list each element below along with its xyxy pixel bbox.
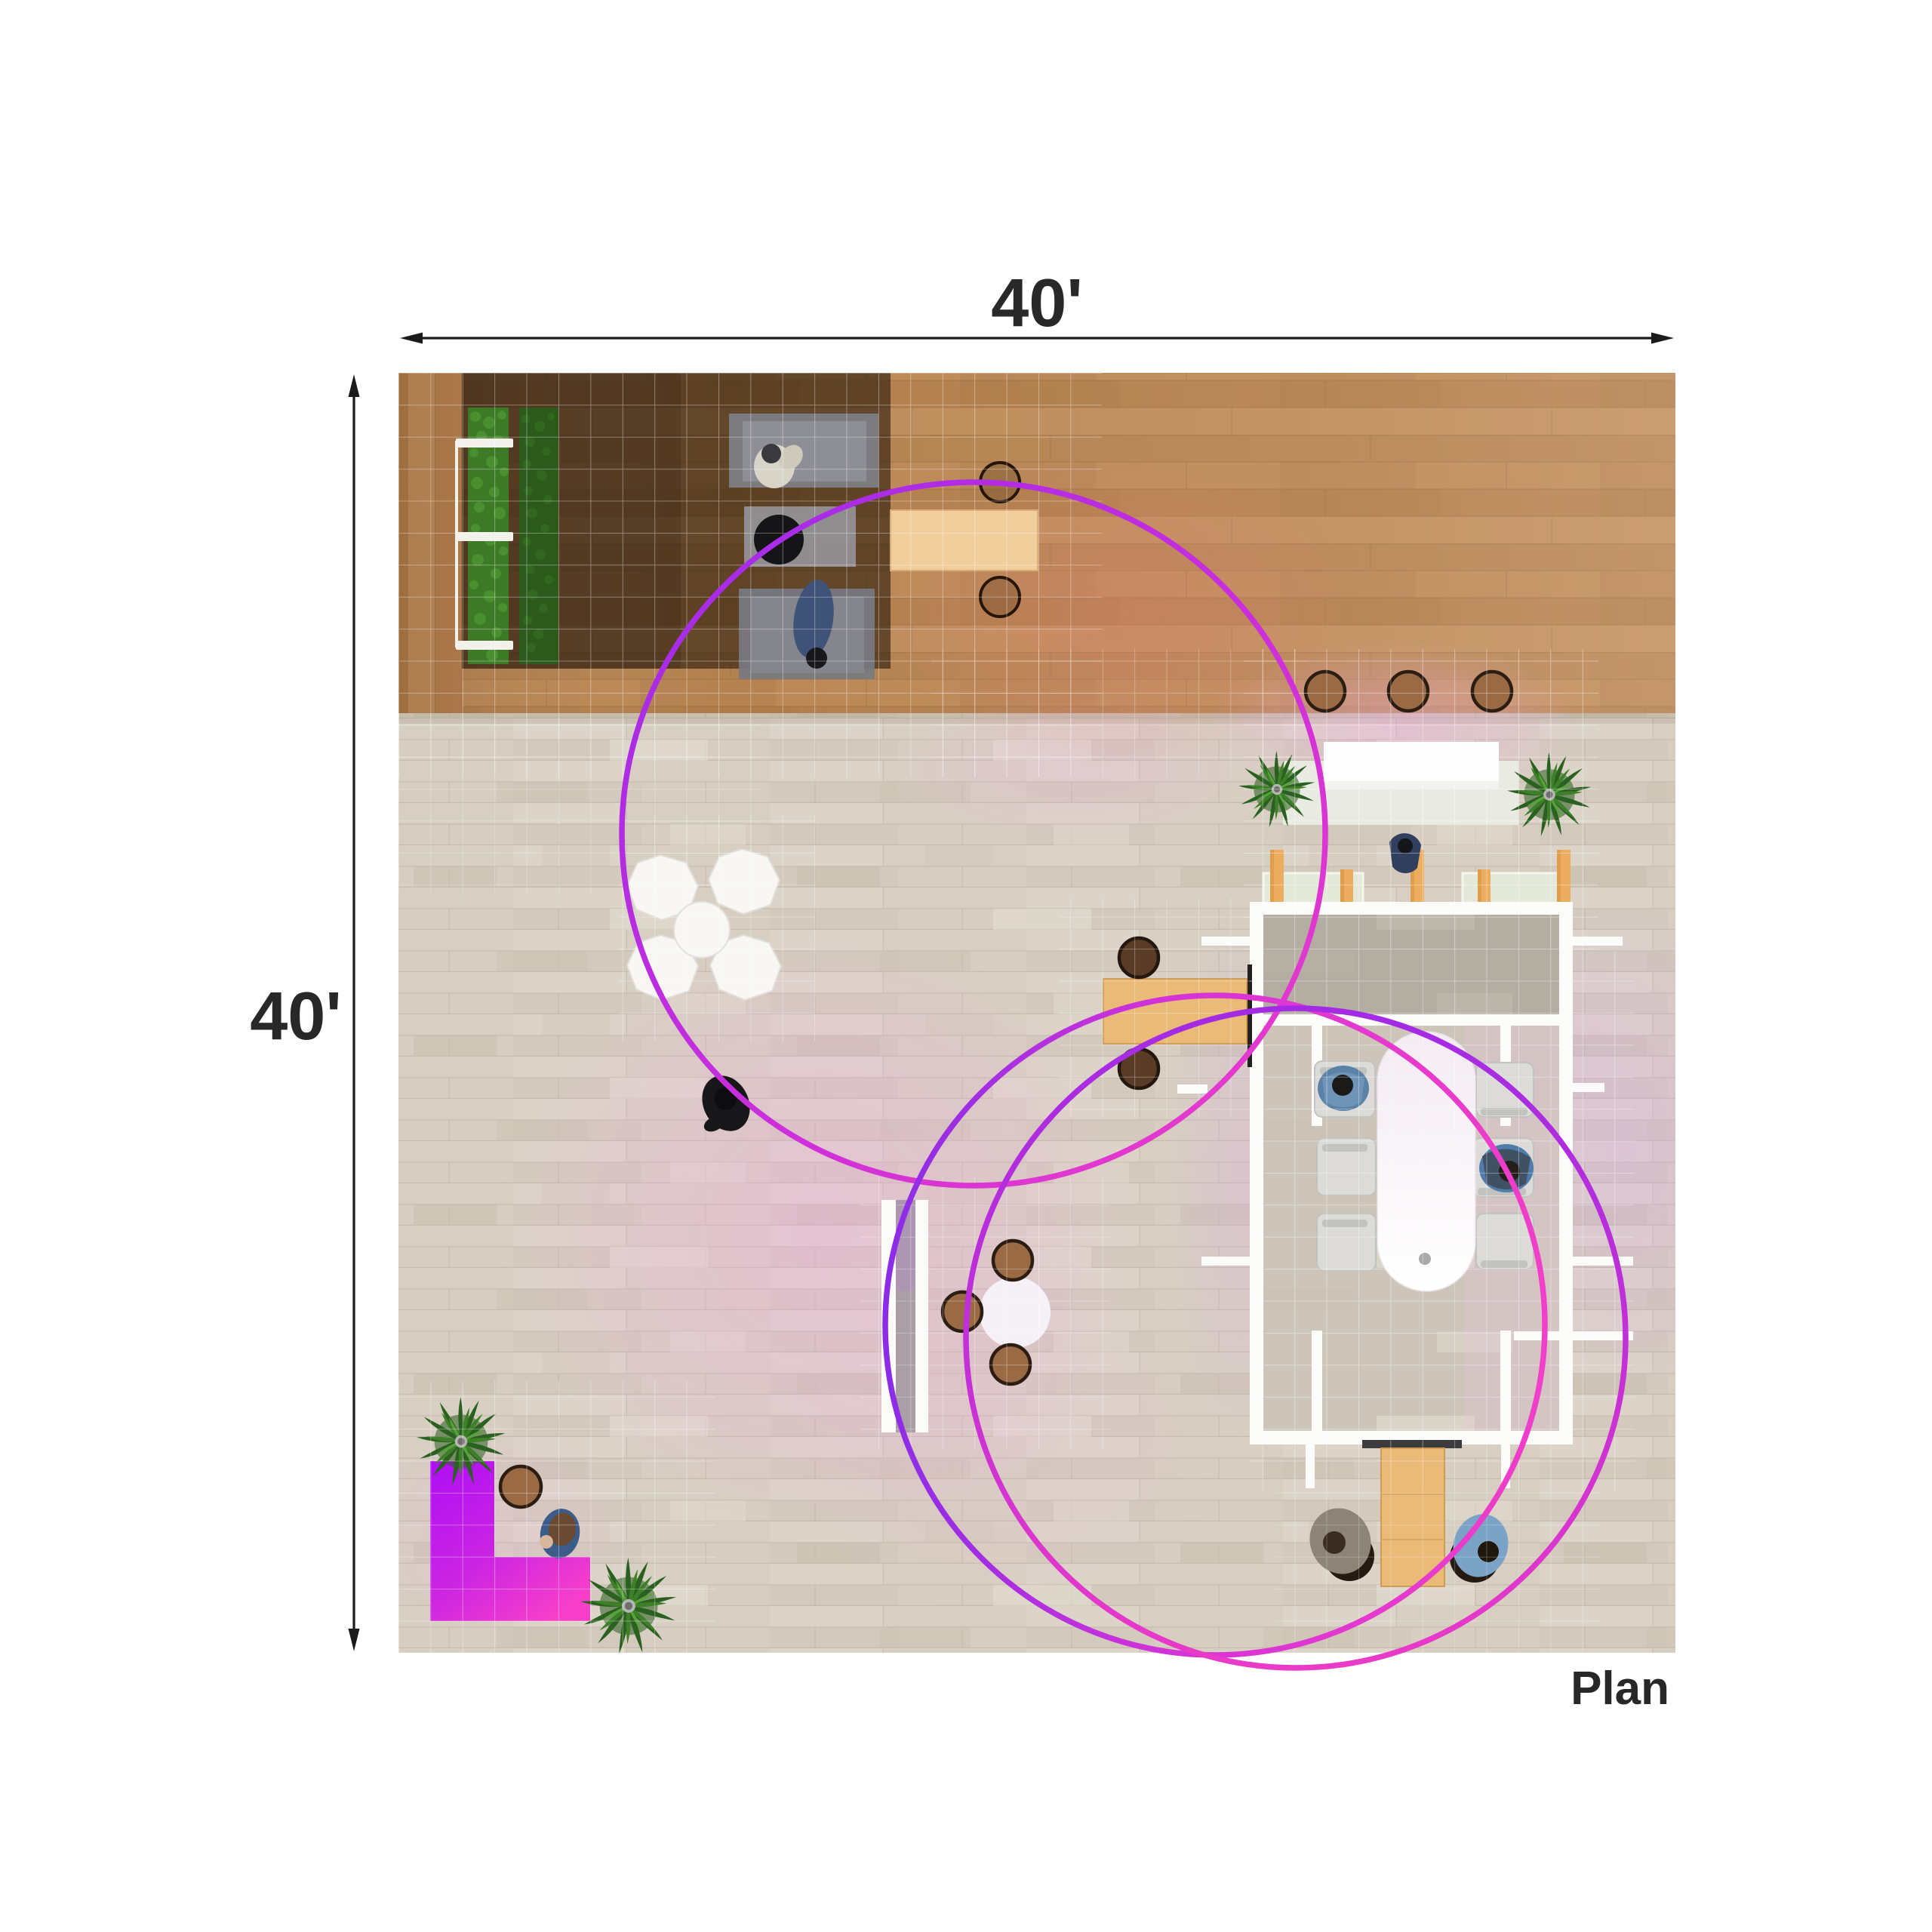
svg-text:40': 40' (991, 266, 1083, 341)
svg-text:40': 40' (250, 979, 342, 1054)
svg-text:Plan: Plan (1571, 1663, 1669, 1715)
